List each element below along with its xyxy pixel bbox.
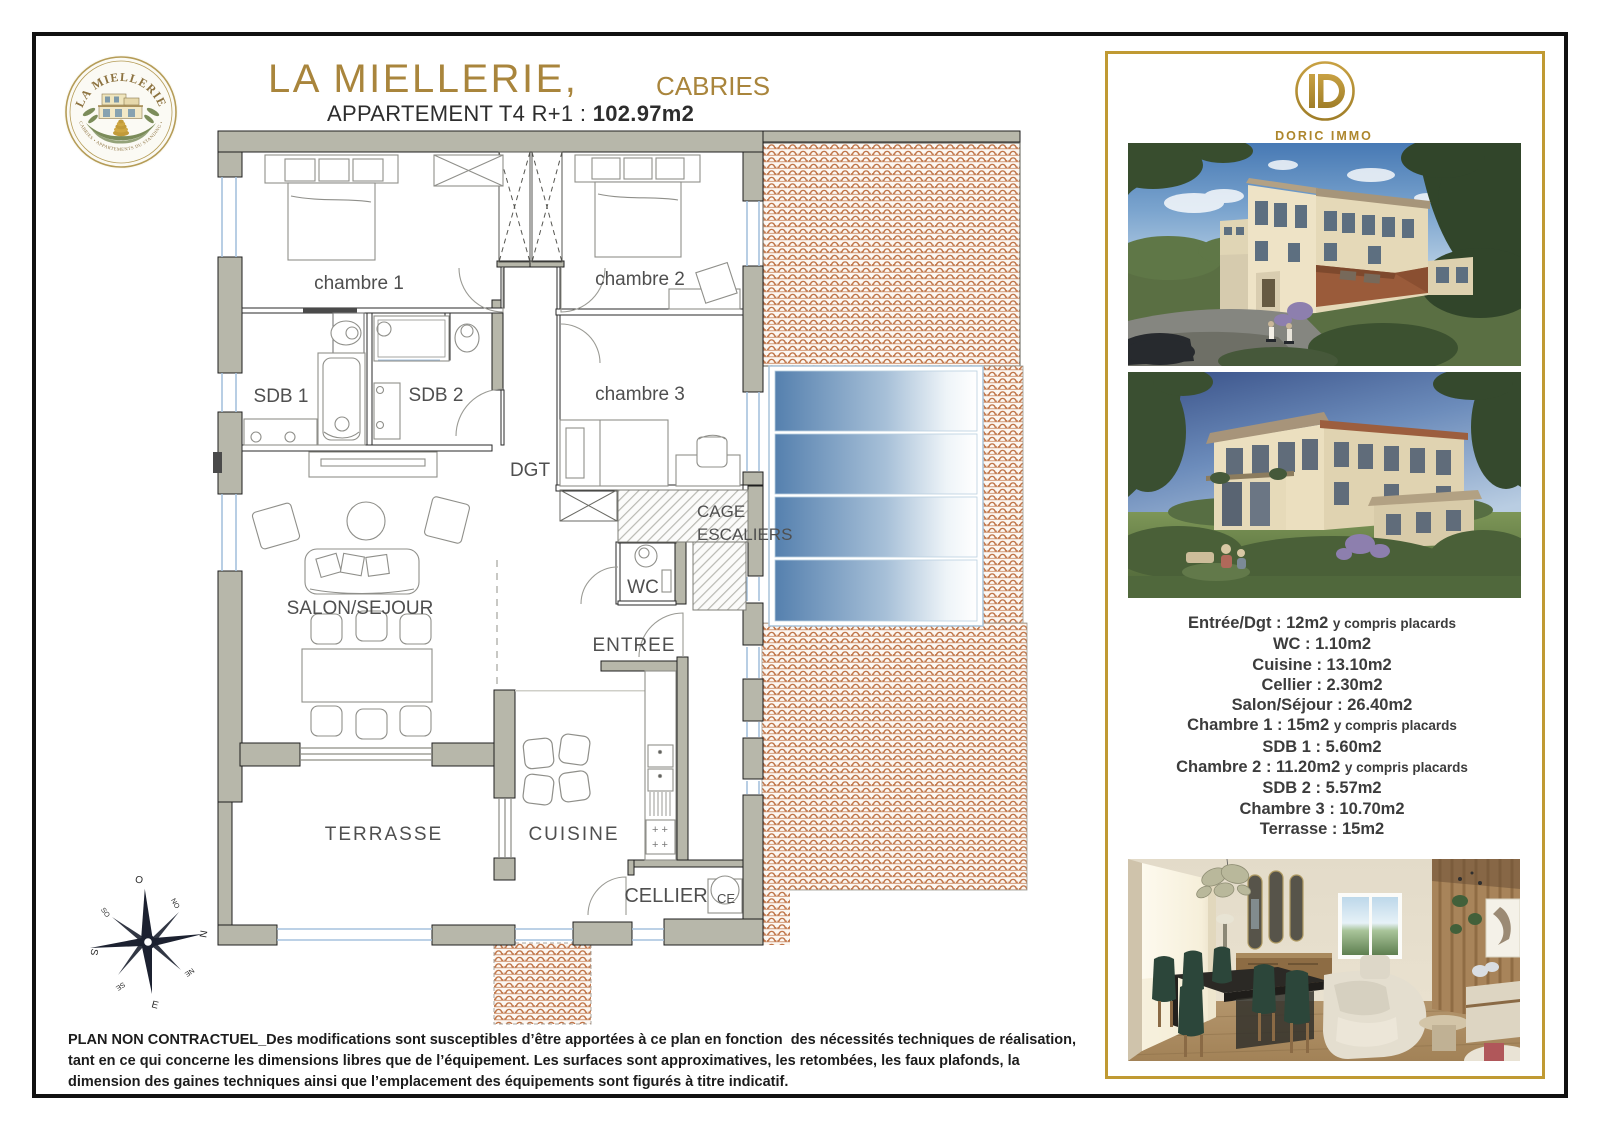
svg-text:TERRASSE: TERRASSE bbox=[325, 824, 443, 845]
svg-text:WC: WC bbox=[627, 577, 659, 598]
svg-text:E: E bbox=[150, 999, 160, 1011]
svg-text:SO: SO bbox=[99, 907, 111, 920]
svg-text:SDB 1: SDB 1 bbox=[254, 386, 309, 407]
svg-text:CUISINE: CUISINE bbox=[528, 824, 619, 845]
svg-text:+ +: + + bbox=[652, 839, 668, 851]
svg-text:chambre 3: chambre 3 bbox=[595, 384, 685, 405]
svg-text:+ +: + + bbox=[652, 824, 668, 836]
svg-text:O: O bbox=[134, 874, 145, 887]
svg-text:chambre 2: chambre 2 bbox=[595, 269, 685, 290]
svg-text:ENTREE: ENTREE bbox=[592, 635, 675, 656]
svg-text:SE: SE bbox=[114, 980, 126, 991]
svg-text:N: N bbox=[196, 929, 208, 938]
svg-text:NO: NO bbox=[169, 897, 181, 910]
svg-text:CAGE: CAGE bbox=[697, 502, 745, 521]
svg-text:chambre 1: chambre 1 bbox=[314, 273, 404, 294]
svg-text:DGT: DGT bbox=[510, 460, 551, 481]
svg-text:ESCALIERS: ESCALIERS bbox=[697, 525, 792, 544]
svg-text:SALON/SEJOUR: SALON/SEJOUR bbox=[287, 598, 434, 619]
svg-text:CE: CE bbox=[717, 891, 735, 906]
svg-text:SDB 2: SDB 2 bbox=[409, 385, 464, 406]
svg-text:NE: NE bbox=[183, 966, 195, 978]
svg-text:CELLIER: CELLIER bbox=[624, 885, 707, 907]
svg-text:S: S bbox=[87, 948, 99, 957]
